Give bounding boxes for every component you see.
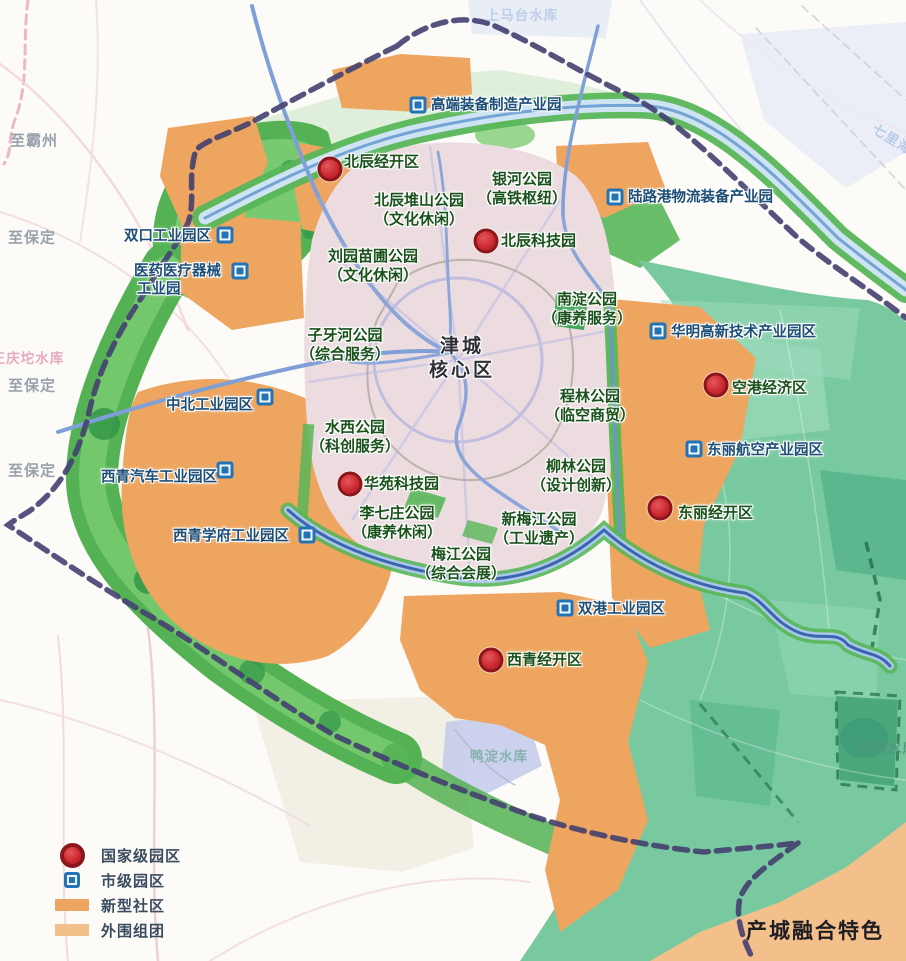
park-function: （康养休闲） [352, 524, 442, 543]
city-park-label: 西青汽车工业园区 [101, 466, 217, 487]
city-park-label: 中北工业园区 [166, 394, 253, 415]
national-park-icon [648, 496, 673, 521]
park-label: 南淀公园 （康养服务） [542, 291, 632, 329]
city-park-label: 高端装备制造产业园 [431, 94, 562, 115]
park-name: 子牙河公园 [300, 327, 390, 346]
city-park-label: 陆路港物流装备产业园 [628, 186, 773, 207]
legend-marker [55, 872, 89, 888]
park-name: 梅江公园 [416, 546, 506, 565]
park-name: 刘园苗圃公园 [328, 248, 418, 267]
city-park-icon [410, 97, 427, 114]
park-name: 程林公园 [545, 388, 635, 407]
park-label: 新梅江公园 （工业遗产） [494, 511, 584, 549]
direction-label: 至保定 [8, 460, 56, 481]
park-function: （综合服务） [300, 346, 390, 365]
park-name: 柳林公园 [531, 458, 621, 477]
park-label: 李七庄公园 （康养休闲） [352, 505, 442, 543]
park-label: 子牙河公园 （综合服务） [300, 327, 390, 365]
legend-city-icon [64, 872, 80, 888]
park-function: （设计创新） [531, 477, 621, 496]
park-label: 刘园苗圃公园 （文化休闲） [328, 248, 418, 286]
legend-label: 国家级园区 [101, 845, 181, 866]
park-function: （综合会展） [416, 565, 506, 584]
national-park-icon [479, 648, 504, 673]
legend-marker [55, 843, 89, 868]
legend-item: 国家级园区 [55, 846, 181, 864]
national-park-label: 北辰经开区 [344, 151, 419, 172]
national-park-label: 西青经开区 [507, 649, 582, 670]
city-park-icon [557, 600, 574, 617]
water-label: 官港水库 [859, 737, 906, 757]
park-label: 水西公园 （科创服务） [310, 419, 400, 457]
national-park-label: 东丽经开区 [678, 502, 753, 523]
city-park-icon [607, 189, 624, 206]
park-function: （高铁枢纽） [477, 190, 567, 209]
park-name: 水西公园 [310, 419, 400, 438]
city-park-icon [217, 227, 234, 244]
city-park-icon [217, 462, 234, 479]
direction-label: 至保定 [8, 227, 56, 248]
legend-marker [55, 899, 89, 911]
legend-marker [55, 924, 89, 936]
map-legend: 国家级园区 市级园区 新型社区 外围组团 [55, 846, 181, 939]
legend-label: 外围组团 [101, 920, 165, 941]
city-park-label: 双口工业园区 [124, 225, 211, 246]
legend-community-swatch [55, 899, 89, 911]
water-label: 王庆坨水库 [0, 347, 64, 367]
park-function: （康养服务） [542, 310, 632, 329]
legend-item: 外围组团 [55, 921, 181, 939]
legend-label: 新型社区 [101, 895, 165, 916]
city-park-label: 双港工业园区 [578, 598, 665, 619]
core-area-line1: 津城 [429, 335, 495, 359]
legend-item: 新型社区 [55, 896, 181, 914]
direction-label: 至霸州 [10, 130, 58, 151]
national-park-icon [704, 373, 729, 398]
park-name: 新梅江公园 [494, 511, 584, 530]
water-label: 上马台水库 [486, 4, 559, 24]
park-name: 银河公园 [477, 171, 567, 190]
city-park-icon [650, 323, 667, 340]
legend-periphery-swatch [55, 924, 89, 936]
national-park-icon [474, 229, 499, 254]
city-park-icon [257, 389, 274, 406]
city-park-icon [299, 527, 316, 544]
water-label: 鸭淀水库 [470, 745, 528, 765]
core-area-label: 津城 核心区 [429, 335, 495, 383]
park-label: 银河公园 （高铁枢纽） [477, 171, 567, 209]
park-name: 南淀公园 [542, 291, 632, 310]
national-park-label: 北辰科技园 [501, 230, 576, 251]
park-label: 北辰堆山公园 （文化休闲） [374, 192, 464, 230]
direction-label: 至保定 [8, 375, 56, 396]
city-park-label: 西青学府工业园区 [173, 525, 289, 546]
legend-label: 市级园区 [101, 870, 165, 891]
city-park-label: 东丽航空产业园区 [707, 439, 823, 460]
legend-item: 市级园区 [55, 871, 181, 889]
city-park-label: 华明高新技术产业园区 [671, 321, 816, 342]
city-park-icon [232, 263, 249, 280]
park-label: 程林公园 （临空商贸） [545, 388, 635, 426]
park-function: （文化休闲） [328, 267, 418, 286]
city-park-icon [686, 441, 703, 458]
national-park-icon [318, 157, 343, 182]
national-park-label: 华苑科技园 [364, 473, 439, 494]
park-function: （文化休闲） [374, 211, 464, 230]
tianjin-planning-map: 北辰堆山公园 （文化休闲） 银河公园 （高铁枢纽） 刘园苗圃公园 （文化休闲） … [0, 0, 906, 961]
park-label: 梅江公园 （综合会展） [416, 546, 506, 584]
park-function: （科创服务） [310, 438, 400, 457]
national-park-icon [338, 472, 363, 497]
national-park-label: 空港经济区 [732, 377, 807, 398]
park-function: （临空商贸） [545, 407, 635, 426]
park-name: 北辰堆山公园 [374, 192, 464, 211]
legend-national-icon [60, 843, 85, 868]
city-park-label-line2: 工业园 [137, 278, 181, 299]
corner-note: 产城融合特色 [746, 915, 884, 945]
park-name: 李七庄公园 [352, 505, 442, 524]
park-function: （工业遗产） [494, 530, 584, 549]
park-label: 柳林公园 （设计创新） [531, 458, 621, 496]
core-area-line2: 核心区 [429, 359, 495, 383]
